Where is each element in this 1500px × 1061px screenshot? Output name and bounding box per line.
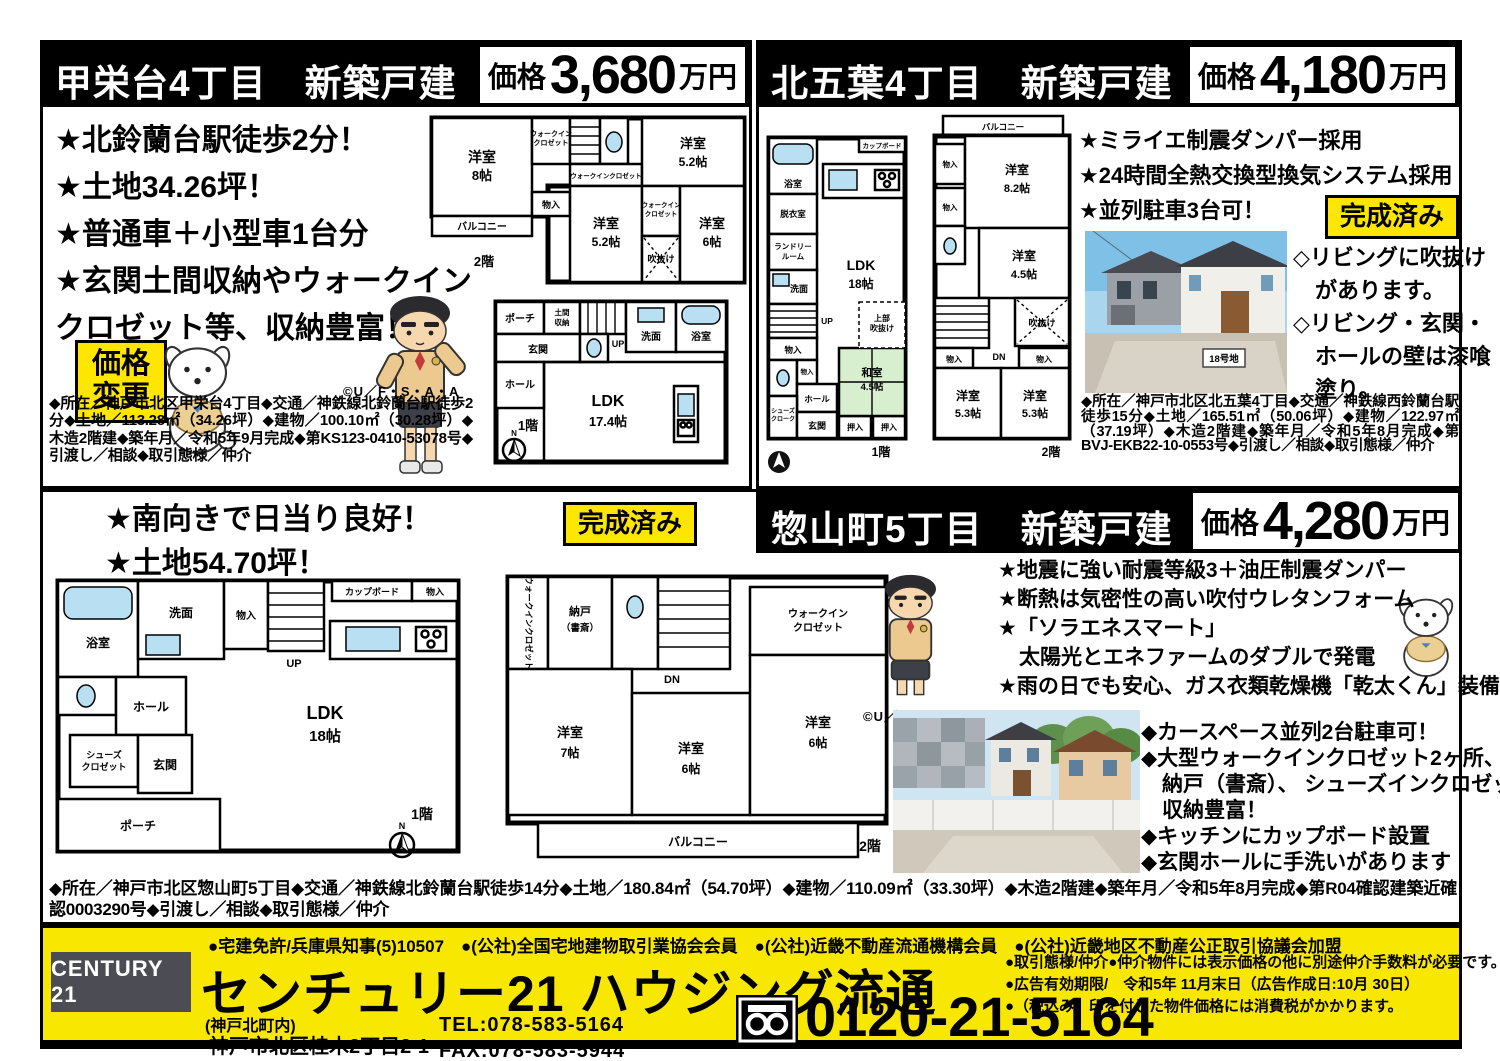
room-label: 納戸 [569,604,591,618]
room-label: 物入 [542,199,560,210]
room-label: 7帖 [561,745,580,760]
floor-plan-koeidai-2f: 洋室 8帖 ウォークイン クロゼット ウォークインクロゼット 洋室 5.2帖 物… [428,110,748,292]
company-footer: ●宅建免許/兵庫県知事(5)10507 ●(公社)全国宅地建物取引業協会会員 ●… [40,925,1462,1049]
room-label: 収納 [555,317,570,327]
price-unit: 万円 [1389,54,1447,96]
feature-line: ◇リビングに吹抜け [1293,241,1491,274]
feature-line: ◆大型ウォークインクロゼット2ヶ所、 [1141,746,1500,772]
floor-label: 1階 [518,418,538,433]
price-label: 価格 [488,54,546,96]
room-label: 物入 [784,345,802,355]
room-label: 押入 [847,422,863,432]
price-unit: 万円 [679,54,737,96]
floor-label: 1階 [872,444,891,459]
room-label: 5.3帖 [1022,406,1048,420]
freedial-icon [735,994,799,1046]
room-label: ホール [505,379,535,391]
room-label: 和室 [861,366,883,379]
property1-header: 甲栄台4丁目 新築戸建 価格 3,680 万円 [43,43,749,107]
property3-features: ◆カースペース並列2台駐車可！ ◆大型ウォークインクロゼット2ヶ所、 納戸（書斎… [1141,720,1500,876]
room-label: 洋室 [1012,248,1036,263]
room-label: 8帖 [472,168,492,183]
property-panel-soyamacho: 惣山町5丁目 新築戸建 価格 4,280 万円 ★南向きで日当り良好！ ★土地5… [40,489,1462,925]
room-label: バルコニー [668,835,728,849]
feature-line: ◆カースペース並列2台駐車可！ [1141,720,1500,746]
floor-label: 2階 [474,254,494,269]
floor-plan-soyamacho: 浴室 洗面 物入 UP カップボード 物入 ホール シューズ クロゼット 玄関 … [50,565,895,877]
room-label: 洋室 [1005,162,1029,177]
room-label: 洋室 [557,725,583,740]
room-label: ウォークインクロゼット [524,576,534,670]
room-label: 洋室 [680,136,706,151]
room-label: 6帖 [809,735,828,750]
room-label: 洋室 [805,715,831,730]
room-label: 6帖 [703,234,722,249]
bullet: ★普通車＋小型車1台分 [55,211,472,258]
room-label: 5.3帖 [955,406,981,420]
room-label: 浴室 [784,178,802,189]
room-label: 脱衣室 [780,209,806,219]
room-label: クロゼット [645,209,678,218]
price-label: 価格 [1198,54,1256,96]
room-label: DN [993,352,1006,362]
room-label: ルーム [782,252,805,261]
room-label: 洋室 [956,388,980,403]
property1-title: 甲栄台4丁目 新築戸建 [55,53,457,107]
price-value: 4,280 [1263,494,1388,548]
room-label: シューズ [86,749,122,760]
room-label: 4.5帖 [861,381,884,393]
room-label: （書斎） [561,622,599,634]
feature-line: 納戸（書斎）、 シューズインクロゼットなど [1141,772,1500,798]
room-label: DN [664,674,680,686]
room-label: 浴室 [86,635,110,650]
room-label: 洗面 [169,605,193,620]
completed-badge: 完成済み [563,502,697,546]
room-label: ポーチ [505,312,535,325]
bullet: ★雨の日でも安心、ガス衣類乾燥機「乾太くん」装備 [998,672,1500,701]
room-label: 押入 [881,422,897,432]
room-label: 玄関 [528,343,548,356]
property3-header: 惣山町5丁目 新築戸建 価格 4,280 万円 [756,489,1462,553]
feature-line: ホールの壁は漆喰 [1293,340,1491,373]
room-label: 洋室 [593,216,619,231]
room-label: ウォークイン [642,200,682,209]
room-label: クロゼット [793,621,843,634]
property2-details: ◆所在／神戸市北区北五葉4丁目◆交通／神鉄線西鈴蘭台駅徒歩15分◆土地／165.… [1081,395,1459,454]
room-label: 洋室 [1023,388,1047,403]
room-label: 上部 [874,313,890,323]
room-label: 4.5帖 [1011,267,1037,281]
room-label: 物入 [426,586,444,597]
room-label: 吹抜け [870,323,894,333]
bullet: ★ミライエ制震ダンパー採用 [1079,123,1453,158]
room-label: 玄関 [808,420,826,431]
completed-badge: 完成済み [1325,195,1459,239]
feature-line: があります。 [1293,274,1491,307]
room-label: 物入 [946,354,962,364]
room-label: 物入 [943,159,958,169]
shinchan-character [863,572,958,704]
room-label: バルコニー [982,122,1024,132]
feature-line: ◆玄関ホールに手洗いがあります [1141,850,1500,876]
property2-header: 北五葉4丁目 新築戸建 価格 4,180 万円 [759,43,1459,107]
room-label: 17.4帖 [589,414,627,429]
property3-photo [893,710,1140,873]
property-panel-koeidai: 甲栄台4丁目 新築戸建 価格 3,680 万円 ★北鈴蘭台駅徒歩2分！ ★土地3… [40,40,752,489]
room-label: 18帖 [848,276,873,291]
freedial-number: 0120-21-5164 [805,984,1154,1049]
bullet: ★「ソラエネスマート」 [998,614,1500,643]
svg-text:N: N [511,429,517,438]
room-label: ランドリー [774,242,812,251]
feature-line: 収納豊富！ [1141,798,1500,824]
tel-number: TEL:078-583-5164 [439,1012,625,1038]
property1-details: ◆所在／神戸市北区甲栄台4丁目◆交通／神鉄線北鈴蘭台駅徒歩2分◆土地／113.2… [49,395,473,464]
property3-details: ◆所在／神戸市北区惣山町5丁目◆交通／神鉄線北鈴蘭台駅徒歩14分◆土地／180.… [49,878,1457,920]
floor-label: 1階 [411,806,433,822]
room-label: クロゼット [81,761,126,772]
room-label: UP [612,339,625,349]
svg-text:N: N [399,821,406,831]
room-label: 物入 [801,367,815,376]
room-label: 吹抜け [1028,317,1055,328]
bullet: ★土地34.26坪！ [55,164,472,211]
room-label: 洋室 [699,216,725,231]
property3-title: 惣山町5丁目 新築戸建 [771,499,1173,553]
room-label: 5.2帖 [679,154,708,169]
room-label: ホール [133,700,169,714]
bullet: ★北鈴蘭台駅徒歩2分！ [55,117,472,164]
century21-logo: CENTURY 21 [51,952,191,1012]
room-label: クローク [771,415,795,423]
lot-number-sign: 18号地 [1209,353,1239,365]
room-label: LDK [307,703,344,723]
room-label: 土間 [555,307,570,317]
property1-price-box: 価格 3,680 万円 [480,47,745,103]
property3-price-box: 価格 4,280 万円 [1193,493,1458,549]
room-label: 5.2帖 [592,234,621,249]
room-label: 物入 [943,202,958,212]
room-label: ウォークインクロゼット [570,171,642,180]
tel-fax: TEL:078-583-5164 FAX:078-583-5944 [439,1012,625,1061]
room-label: LDK [592,393,625,410]
room-label: 浴室 [691,330,711,343]
feature-line: ◆キッチンにカップボード設置 [1141,824,1500,850]
price-value: 3,680 [550,48,675,102]
room-label: クロゼット [534,138,569,147]
note-line: ●取引態様/仲介●仲介物件には表示価格の他に別途仲介手数料が必要です。 [1005,952,1500,974]
room-label: ポーチ [120,818,156,833]
property2-price-box: 価格 4,180 万円 [1190,47,1455,103]
property3-bullets: ★地震に強い耐震等級3＋油圧制震ダンパー ★断熱は気密性の高い吹付ウレタンフォー… [998,556,1500,701]
room-label: 洗面 [790,283,808,294]
property-panel-kitagoyo: 北五葉4丁目 新築戸建 価格 4,180 万円 [756,40,1462,489]
floor-plan-kitagoyo: 浴室 脱衣室 ランドリー ルーム 洗面 UP 物入 物入 ホール シューズ クロ… [763,108,1073,483]
room-label: 6帖 [682,761,701,776]
room-label: ウォークイン [788,608,848,620]
room-label: カップボード [345,586,399,597]
room-label: 洋室 [678,741,704,756]
bullet: 太陽光とエネファームのダブルで発電 [998,643,1500,672]
fax-number: FAX:078-583-5944 [439,1038,625,1061]
room-label: 吹抜け [647,253,674,264]
property2-photo: 18号地 [1085,231,1287,393]
room-label: バルコニー [457,221,507,233]
bullet: ★24時間全熱交換型換気システム採用 [1079,158,1453,193]
room-label: 洋室 [468,149,496,165]
floor-label: 2階 [859,838,881,854]
room-label: 8.2帖 [1004,181,1030,195]
room-label: UP [286,658,301,670]
room-label: 洗面 [641,330,661,343]
feature-line: ◇リビング・玄関・ [1293,307,1491,340]
room-label: UP [821,316,833,326]
blurred-building [893,718,985,788]
company-address: 神戸市北区桂木2丁目2-1 [209,1030,429,1059]
room-label: 18帖 [309,727,341,745]
floor-plan-koeidai-1f: ポーチ 土間 収納 玄関 UP 洗面 浴室 ホール LDK 17.4帖 1階 N [478,290,748,472]
room-label: LDK [847,257,876,273]
price-label: 価格 [1201,500,1259,542]
room-label: カップボード [863,141,902,150]
price-unit: 万円 [1392,500,1450,542]
bullet: ★南向きで日当り良好！ [105,498,432,542]
price-value: 4,180 [1260,48,1385,102]
property2-title: 北五葉4丁目 新築戸建 [771,53,1173,107]
room-label: シューズ [771,407,795,415]
bullet: ★断熱は気密性の高い吹付ウレタンフォーム [998,585,1500,614]
room-label: 物入 [1036,354,1052,364]
room-label: 物入 [236,609,256,622]
property2-features: ◇リビングに吹抜け があります。 ◇リビング・玄関・ ホールの壁は漆喰 塗り。 [1293,241,1491,406]
flyer-page: 甲栄台4丁目 新築戸建 価格 3,680 万円 ★北鈴蘭台駅徒歩2分！ ★土地3… [0,0,1500,1061]
bullet: ★地震に強い耐震等級3＋油圧制震ダンパー [998,556,1500,585]
floor-label: 2階 [1042,444,1061,459]
room-label: ウォークイン [530,129,572,138]
compass-icon [768,451,790,473]
room-label: ホール [804,394,830,404]
room-label: 玄関 [153,757,177,772]
